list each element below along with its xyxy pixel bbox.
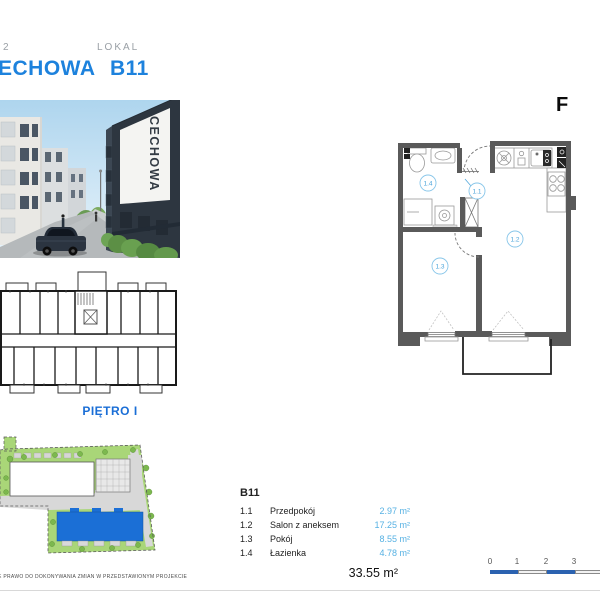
total-area: 33.55 m²: [240, 566, 398, 580]
scale-tick: 1: [512, 557, 522, 566]
room-area: 17.25 m²: [360, 520, 410, 530]
room-code: 1.4: [240, 548, 270, 558]
area-legend: B11 1.1 Przedpokój 2.97 m² 1.2 Salon z a…: [240, 487, 410, 580]
dark-building: CECHOWA: [106, 100, 180, 258]
room-code: 1.1: [240, 506, 270, 516]
unit-number: B11: [110, 57, 149, 81]
room-code: 1.2: [240, 520, 270, 530]
scale-tick: 2: [541, 557, 551, 566]
room-area: 4.78 m²: [360, 548, 410, 558]
unit-floor-plan: 1.4 1.1 1.2 1.3: [393, 126, 585, 382]
room-marker-1-3: 1.3: [435, 264, 444, 271]
room-marker-1-2: 1.2: [510, 237, 519, 244]
scale-segment: [547, 570, 575, 574]
scale-segment: [575, 570, 600, 574]
toilet-tank: [408, 148, 426, 154]
balconies-bottom: [10, 385, 162, 393]
room-marker-1-4: 1.4: [423, 181, 432, 188]
floor-overview-plan: [0, 266, 185, 396]
lokal-label: LOKAL: [97, 42, 139, 53]
estate-name: ECHOWA: [0, 57, 96, 81]
site-plan: [0, 435, 168, 575]
room-name: Salon z aneksem: [270, 520, 360, 530]
toilet-icon: [410, 154, 425, 172]
gable-sign-text: CECHOWA: [147, 116, 161, 192]
legend-row: 1.3 Pokój 8.55 m²: [240, 534, 410, 548]
scale-segment: [518, 570, 547, 574]
legend-row: 1.2 Salon z aneksem 17.25 m²: [240, 520, 410, 534]
legend-row: 1.1 Przedpokój 2.97 m²: [240, 506, 410, 520]
site-building-existing: [10, 462, 94, 496]
balcony-outline: [463, 337, 551, 374]
room-name: Pokój: [270, 534, 360, 544]
balconies-top: [6, 272, 166, 291]
legend-unit-title: B11: [240, 487, 410, 499]
floor-label: PIĘTRO I: [60, 404, 160, 418]
scale-tick: 3: [569, 557, 579, 566]
site-building-highlighted: [57, 508, 143, 546]
room-area: 8.55 m²: [360, 534, 410, 544]
disclaimer-text: E PRAWO DO DOKONYWANIA ZMIAN W PRZEDSTAW…: [0, 574, 187, 580]
scale-bar: 0 1 2 3: [485, 557, 600, 579]
scale-segment: [490, 570, 518, 574]
room-name: Łazienka: [270, 548, 360, 558]
page: { "header": { "stage": "2", "name": "ECH…: [0, 0, 600, 600]
bottom-divider: [0, 590, 600, 591]
scale-tick: 0: [485, 557, 495, 566]
threshold: [462, 168, 479, 173]
white-building: [0, 117, 42, 245]
room-marker-1-1: 1.1: [472, 189, 481, 196]
room-code: 1.3: [240, 534, 270, 544]
building-photo: CECHOWA: [0, 100, 180, 258]
stair-core: [75, 291, 107, 334]
site-building-hatched: [96, 459, 130, 492]
room-area: 2.97 m²: [360, 506, 410, 516]
estate-stage: 2: [3, 42, 11, 53]
room-name: Przedpokój: [270, 506, 360, 516]
developer-logo-partial: F: [556, 94, 569, 117]
shaft-icon: [465, 198, 478, 227]
legend-row: 1.4 Łazienka 4.78 m²: [240, 548, 410, 562]
